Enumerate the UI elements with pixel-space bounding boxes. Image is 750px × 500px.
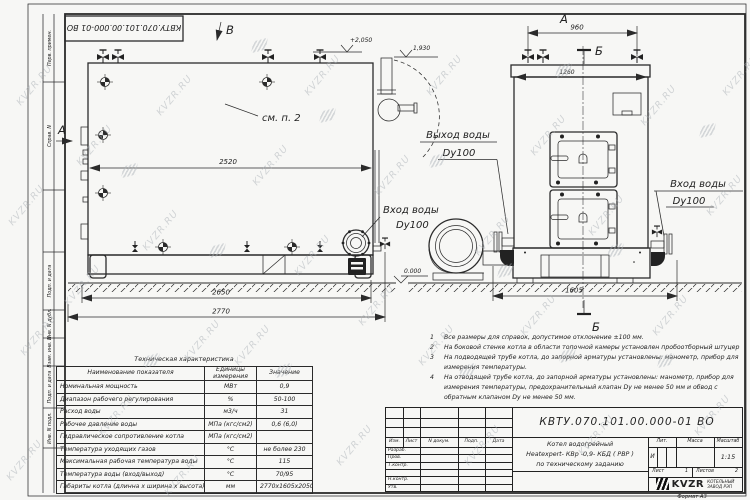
table-row: Габариты котла (длинна х ширина х высота… — [57, 481, 313, 494]
note-item: 4На отводящей трубе котла, до запорной а… — [430, 373, 743, 403]
view-arrow-a-label: А — [57, 123, 66, 137]
col-izm: Изм. — [386, 437, 403, 447]
note-text: На отводящей трубе котла, до запорной ар… — [444, 373, 743, 403]
front-view-label: А — [559, 12, 568, 26]
sign-row-label: Разраб. — [388, 447, 420, 454]
cell: Диапазон рабочего регулирования — [57, 393, 205, 406]
scale-header: Масштаб — [714, 437, 742, 447]
sign-row-label: Н.контр. — [388, 476, 420, 483]
cell: °С — [205, 443, 257, 456]
furnace-door-lower — [550, 190, 617, 248]
sign-row-label — [388, 469, 420, 476]
note-item: 1Все размеры для справок, допустимое отк… — [430, 333, 743, 343]
company-cell: KVZR КОТЕЛЬНЫЙ ЗАВОД РЭП — [648, 477, 742, 491]
sheet-value: 1 — [685, 467, 688, 477]
see-note-label: см. п. 2 — [262, 113, 301, 124]
cell: 115 — [257, 456, 313, 469]
cell: Рабочее давление воды — [57, 418, 205, 431]
strip-label: Подп. и дата — [47, 371, 53, 404]
table-row: Рабочее давление водыМПа (кгс/см2)0,6 (6… — [57, 418, 313, 431]
strip-label: Инв. N дубл. — [47, 308, 53, 339]
dim-2650: 2650 — [212, 289, 230, 297]
cell: Максимальная рабочая температура воды — [57, 456, 205, 469]
table-row: Гидравлическое сопротивление котлаМПа (к… — [57, 431, 313, 444]
cell: 31 — [257, 406, 313, 419]
lit-value: И — [648, 447, 657, 467]
tech-table-title: Техническая характеристика — [56, 355, 312, 363]
product-name: Котел водогрейный Heatexpert- КВр -0,9- … — [513, 440, 647, 470]
cell: МПа (кгс/см2) — [205, 431, 257, 444]
sheet-cell: Лист 1 — [648, 467, 692, 477]
col-podp: Подп. — [458, 437, 485, 447]
cell: Гидравлическое сопротивление котла — [57, 431, 205, 444]
note-text: На боковой стенке котла в области топочн… — [444, 343, 739, 353]
side-inlet-label: Вход воды — [383, 205, 439, 216]
scale-value: 1:15 — [714, 447, 742, 467]
product-name-line: Котел водогрейный — [513, 440, 647, 450]
kvzr-logo-text: KVZR — [672, 479, 704, 490]
cell: не более 230 — [257, 443, 313, 456]
cell: Значение — [257, 367, 313, 381]
cell: МПа (кгс/см2) — [205, 418, 257, 431]
table-row: Диапазон рабочего регулирования%50-100 — [57, 393, 313, 406]
sign-row-label: Утв. — [388, 484, 420, 491]
cell: Габариты котла (длинна х ширина х высота… — [57, 481, 205, 494]
note-text: На подводящей трубе котла, до запорной а… — [444, 353, 743, 373]
elev-zero-label: 0.000 — [404, 268, 421, 275]
product-name-line: Heatexpert- КВр -0,9- КБД ( РВР ) — [513, 450, 647, 460]
doc-number-top: КВТУ.070.101.00.000-01 ВО — [67, 23, 181, 32]
side-inlet-dn: Dy100 — [396, 220, 429, 231]
side-view: А В см. п. 2 2520 — [56, 22, 742, 322]
cell: 0,9 — [257, 381, 313, 394]
note-number: 2 — [430, 343, 444, 353]
furnace-door-upper — [550, 132, 617, 187]
elev-top-label: +2,050 — [350, 37, 372, 44]
note-text: Все размеры для справок, допустимое откл… — [444, 333, 644, 343]
section-b-top-label: Б — [595, 44, 603, 58]
table-row: Максимальная рабочая температура воды°С1… — [57, 456, 313, 469]
strip-label: Инв. N подл. — [47, 412, 53, 444]
sheets-value: 2 — [735, 467, 738, 477]
cell: 0,6 (6,0) — [257, 418, 313, 431]
mass-header: Масса — [676, 437, 714, 447]
cell: мм — [205, 481, 257, 494]
strip-label: Подп. и дата — [47, 265, 53, 298]
dim-1260: 1260 — [559, 69, 574, 76]
tech-characteristics: Техническая характеристика Наименование … — [56, 355, 312, 494]
strip-label: Взам. инв. N — [47, 336, 53, 368]
cell: 50-100 — [257, 393, 313, 406]
note-item: 2На боковой стенке котла в области топоч… — [430, 343, 743, 353]
sign-row-label: Пров. — [388, 454, 420, 461]
front-outlet-label: Выход воды — [426, 130, 490, 141]
doc-number: КВТУ.070.101.00.000-01 ВО — [512, 408, 742, 437]
col-list: Лист — [403, 437, 420, 447]
col-data: Дата — [485, 437, 512, 447]
cell: 70/95 — [257, 468, 313, 481]
dim-2770: 2770 — [212, 308, 230, 316]
dim-1605: 1605 — [565, 287, 583, 295]
company-name: КОТЕЛЬНЫЙ ЗАВОД РЭП — [707, 479, 734, 489]
table-row: Температура уходящих газов°Сне более 230 — [57, 443, 313, 456]
table-row: Расход водым3/ч31 — [57, 406, 313, 419]
drawing-sheet: Перв. примен. Справ. N Подп. и дата Инв.… — [0, 0, 750, 500]
tech-header-row: Наименование показателя Единицы измерени… — [57, 367, 313, 381]
front-outlet-dn: Dy100 — [443, 148, 476, 159]
sheet-label: Лист — [652, 467, 664, 477]
col-ndoc: N докум. — [420, 437, 458, 447]
lit-header: Лит. — [648, 437, 676, 447]
note-item: 3На подводящей трубе котла, до запорной … — [430, 353, 743, 373]
cell: Единицы измерения — [205, 367, 257, 381]
format-label: Формат А3 — [640, 494, 744, 500]
blower-fan — [429, 219, 513, 280]
cell: % — [205, 393, 257, 406]
strip-label: Справ. N — [47, 125, 53, 147]
product-name-line: по техническому заданию — [513, 460, 647, 470]
notes: 1Все размеры для справок, допустимое отк… — [430, 333, 743, 403]
note-number: 1 — [430, 333, 444, 343]
table-row: Номинальная мощностьМВт0,9 — [57, 381, 313, 394]
table-row: Температура воды (вход/выход)°С70/95 — [57, 468, 313, 481]
dim-960: 960 — [570, 24, 584, 32]
cell: 2770х1605х2050 — [257, 481, 313, 494]
dim-2520: 2520 — [219, 158, 237, 166]
strip-label: Перв. примен. — [47, 30, 53, 66]
cell: Температура воды (вход/выход) — [57, 468, 205, 481]
cell — [257, 431, 313, 444]
cell: Температура уходящих газов — [57, 443, 205, 456]
title-block: КВТУ.070.101.00.000-01 ВО Котел водогрей… — [385, 407, 743, 492]
front-inlet-dn: Dy100 — [673, 196, 706, 207]
cell: °С — [205, 468, 257, 481]
sign-row-label: Т.контр. — [388, 462, 420, 469]
cell: Номинальная мощность — [57, 381, 205, 394]
cell: м3/ч — [205, 406, 257, 419]
tech-table: Наименование показателя Единицы измерени… — [56, 366, 313, 494]
note-number: 3 — [430, 353, 444, 373]
elev-chimney-label: 1,930 — [413, 45, 430, 52]
cell: МВт — [205, 381, 257, 394]
kvzr-logo-icon — [656, 478, 669, 490]
sheets-cell: Листов 2 — [692, 467, 742, 477]
note-number: 4 — [430, 373, 444, 403]
section-b-bottom-label: Б — [592, 320, 600, 334]
cell: Наименование показателя — [57, 367, 205, 381]
view-arrow-b-label: В — [226, 23, 234, 37]
sheets-label: Листов — [696, 467, 714, 477]
cell: °С — [205, 456, 257, 469]
cell: Расход воды — [57, 406, 205, 419]
front-inlet-label: Вход воды — [670, 179, 726, 190]
